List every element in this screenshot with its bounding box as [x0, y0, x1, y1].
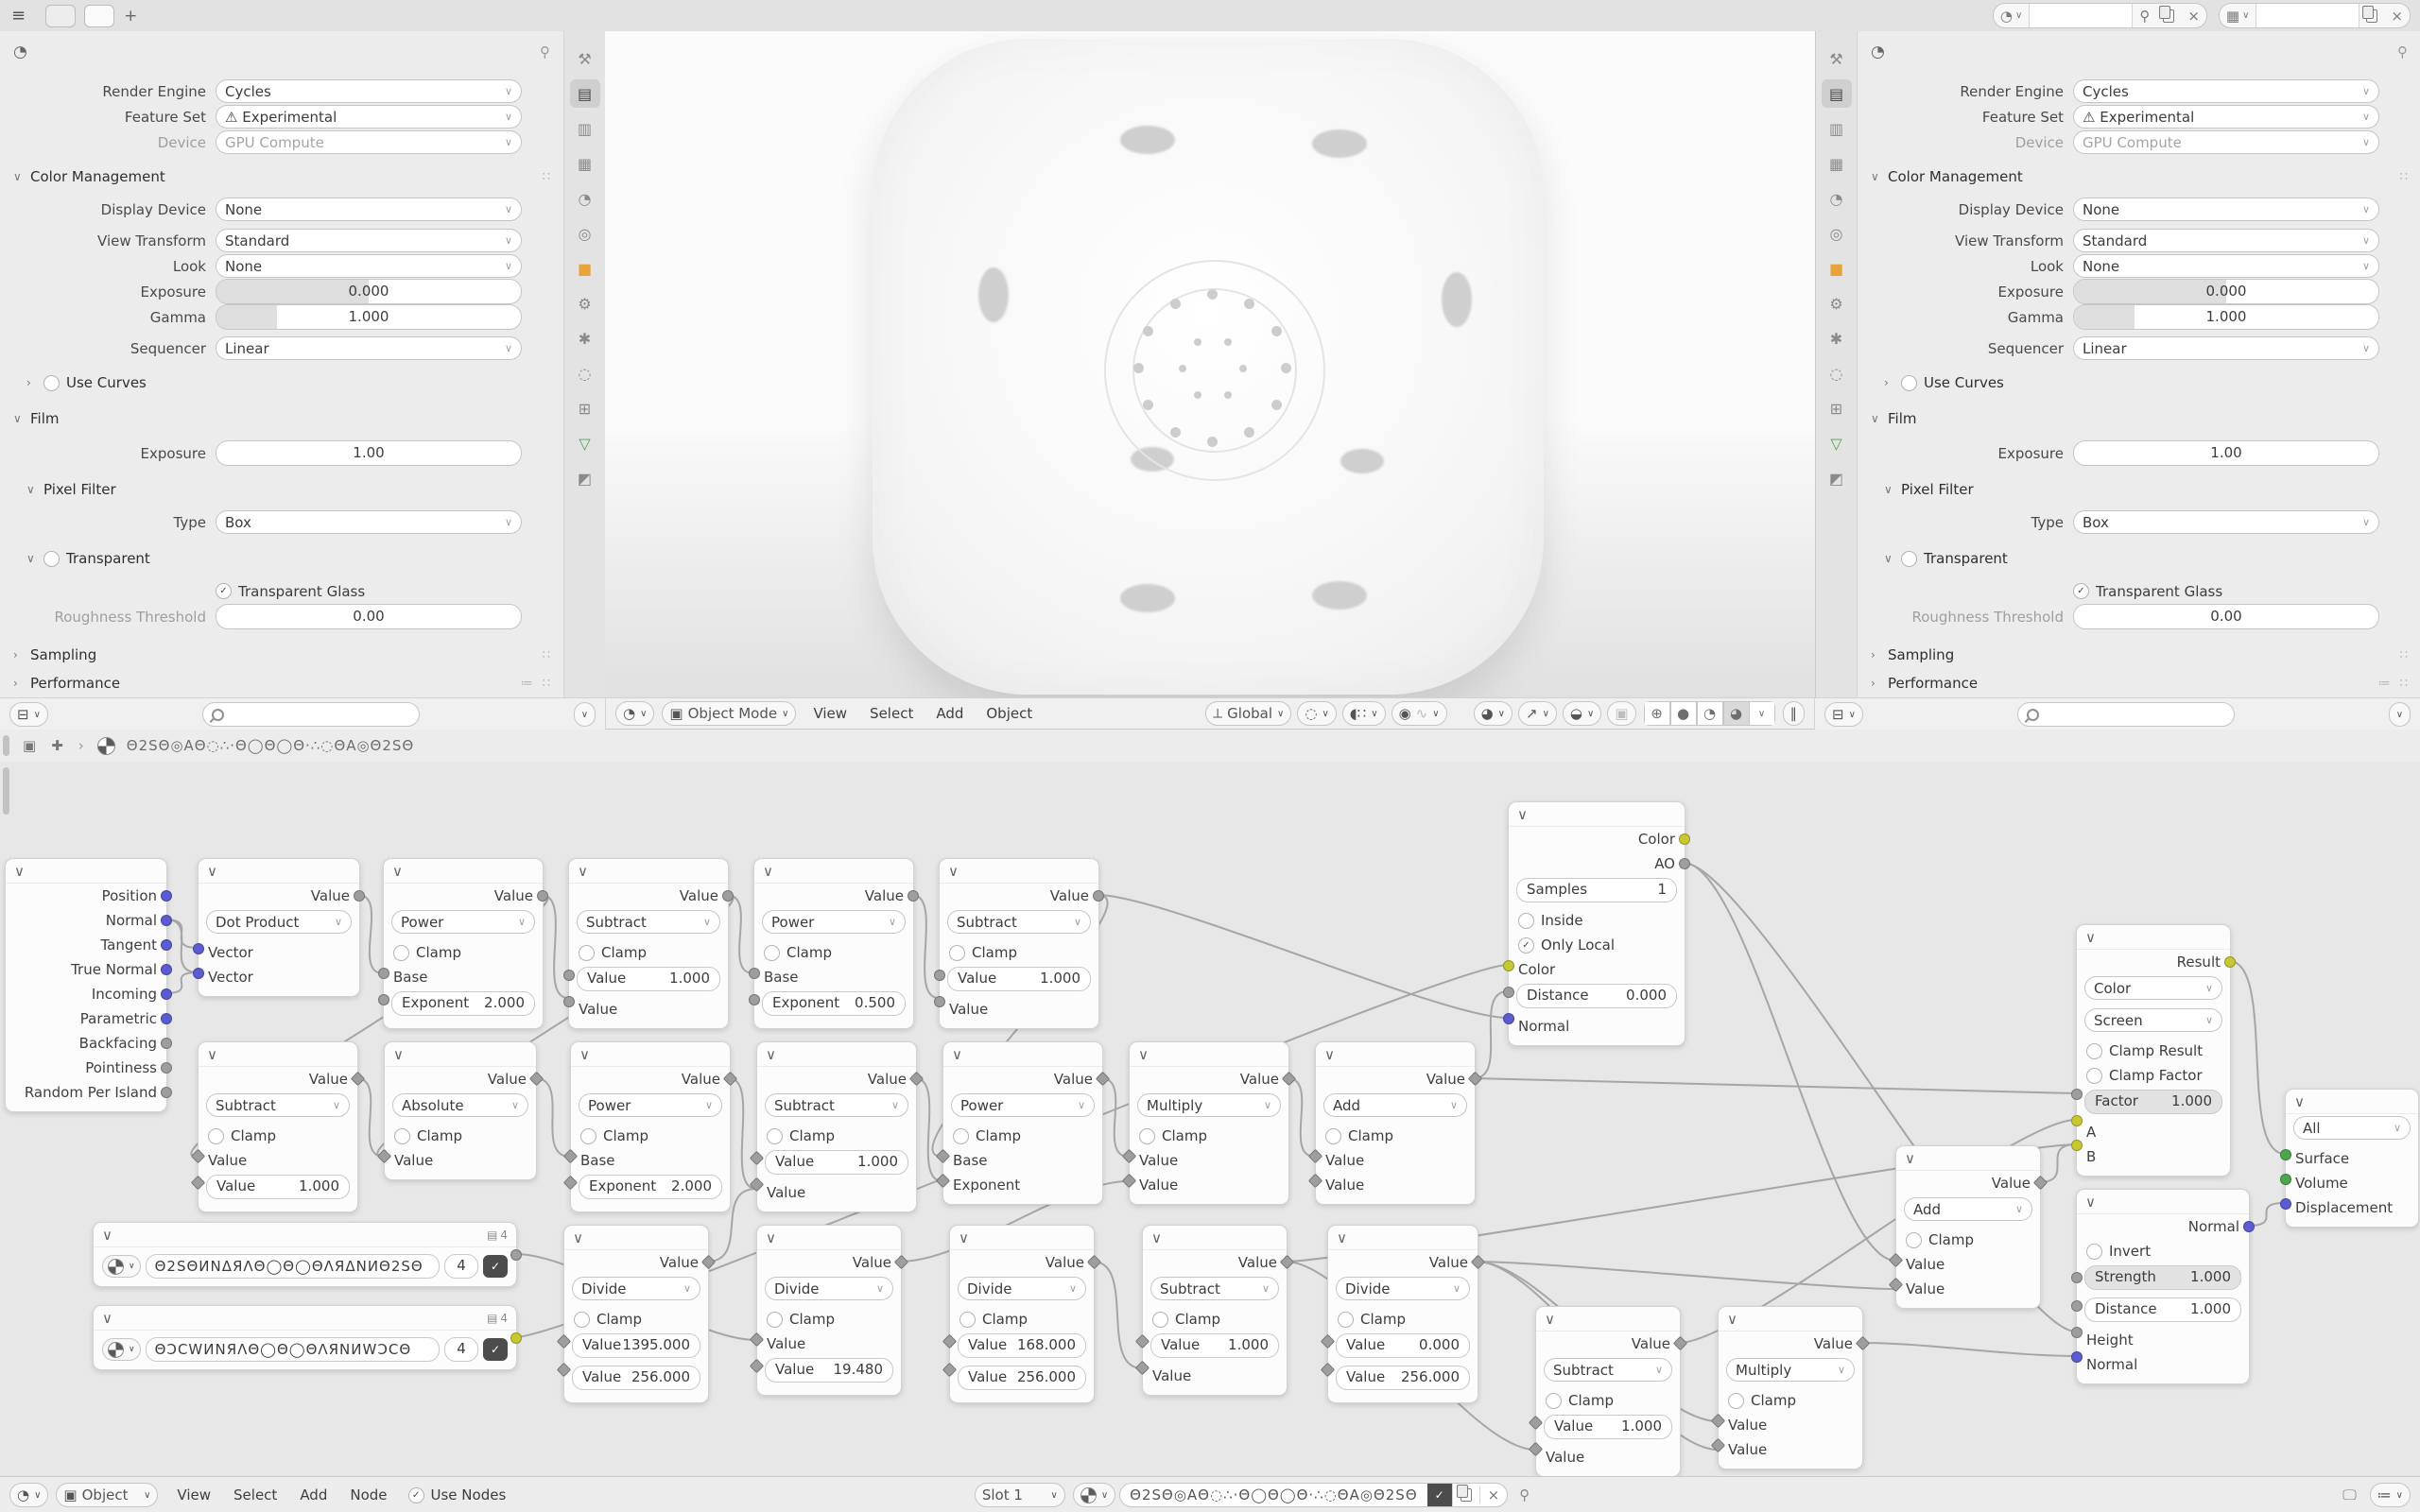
fake-user-toggle[interactable]: ✓ — [1427, 1484, 1452, 1506]
value-field[interactable]: Value1.000 — [1544, 1415, 1672, 1439]
node-socket[interactable] — [537, 890, 548, 902]
node-socket[interactable] — [1503, 987, 1514, 998]
prop-dropdown[interactable]: None∨ — [2073, 198, 2379, 221]
node-socket[interactable] — [1679, 833, 1690, 845]
properties-tab-icon[interactable]: ▦ — [570, 149, 600, 178]
math-node[interactable]: ∨ValueSubtract∨ClampValueValue1.000 — [198, 1041, 358, 1212]
properties-tab-icon[interactable]: ⚙ — [570, 289, 600, 318]
value-field[interactable]: Value1.000 — [577, 967, 720, 991]
operation-dropdown[interactable]: Subtract∨ — [765, 1093, 908, 1117]
operation-dropdown[interactable]: Power∨ — [391, 910, 535, 934]
image-browse-dropdown[interactable]: ∨ — [102, 1255, 141, 1278]
scene-selector[interactable]: ◔∨ ⚲ × — [1993, 3, 2207, 28]
checkbox[interactable] — [1906, 1232, 1922, 1248]
math-node[interactable]: ∨ValueMultiply∨ClampValueValue — [1718, 1306, 1863, 1469]
node-socket[interactable] — [193, 943, 204, 954]
transparent-glass-checkbox[interactable]: ✓ — [216, 583, 232, 599]
properties-tab-icon[interactable]: ◎ — [570, 219, 600, 248]
input-socket-label: Exponent — [953, 1177, 1020, 1194]
value-field[interactable]: Value256.000 — [572, 1366, 700, 1390]
math-node[interactable]: ∨ValuePower∨ClampBaseExponent2.000 — [383, 858, 544, 1029]
pixel-filter-subsection[interactable]: ∨Pixel Filter — [0, 475, 563, 504]
math-node[interactable]: ∨ValueAdd∨ClampValueValue — [1315, 1041, 1476, 1205]
pin-icon[interactable]: ⚲ — [540, 43, 550, 60]
node-socket[interactable] — [563, 996, 575, 1007]
math-node[interactable]: ∨ValuePower∨ClampBaseExponent2.000 — [570, 1041, 731, 1212]
prop-dropdown[interactable]: GPU Compute∨ — [216, 130, 522, 154]
slot-dropdown[interactable]: Slot 1∨ — [975, 1483, 1065, 1507]
input-socket-label: Value — [1139, 1152, 1178, 1169]
value-field[interactable]: Value256.000 — [958, 1366, 1086, 1390]
3d-viewport[interactable] — [605, 31, 1815, 697]
bump-node[interactable]: ∨NormalInvertStrength1.000Distance1.000H… — [2076, 1189, 2250, 1384]
math-node[interactable]: ∨ValueAdd∨ClampValueValue — [1895, 1145, 2041, 1309]
input-socket-label: Value — [1728, 1441, 1767, 1458]
prop-dropdown[interactable]: None∨ — [216, 198, 522, 221]
workspace-tab-active[interactable] — [84, 5, 114, 27]
scene-name-field[interactable] — [2029, 4, 2133, 27]
node-socket[interactable] — [2071, 1115, 2083, 1126]
value-field[interactable]: Strength1.000 — [2084, 1265, 2241, 1290]
properties-tab-icon[interactable]: ■ — [570, 254, 600, 283]
node-socket[interactable] — [934, 970, 945, 981]
node-socket[interactable] — [2071, 1351, 2083, 1363]
section-header[interactable]: ∨Color Management∷ — [1858, 163, 2420, 191]
shading-solid-icon[interactable]: ● — [1670, 701, 1697, 726]
value-field[interactable]: Exponent2.000 — [391, 991, 535, 1016]
node-socket[interactable] — [2071, 1140, 2083, 1151]
math-node[interactable]: ∨ValueSubtract∨ClampValue1.000Value — [568, 858, 729, 1029]
properties-tab-icon[interactable]: ▽ — [1822, 429, 1852, 457]
operation-dropdown[interactable]: Subtract∨ — [206, 1093, 350, 1117]
prop-dropdown[interactable]: Linear∨ — [2073, 336, 2379, 360]
prop-slider[interactable]: 0.000 — [2073, 279, 2379, 304]
math-node[interactable]: ∨ValuePower∨ClampBaseExponent0.500 — [753, 858, 914, 1029]
search-input[interactable] — [202, 702, 420, 727]
node-socket[interactable] — [1093, 890, 1104, 902]
prop-number-field[interactable]: 1.00 — [216, 440, 522, 466]
checkbox[interactable] — [1546, 1393, 1562, 1409]
prop-dropdown[interactable]: Standard∨ — [216, 229, 522, 252]
properties-tab-icon[interactable]: ⚙ — [1822, 289, 1852, 318]
filter-toggle-button[interactable]: ⊟∨ — [1824, 702, 1863, 727]
node-socket[interactable] — [193, 968, 204, 979]
options-dropdown[interactable]: ∨ — [2389, 702, 2411, 727]
math-node[interactable]: ∨ValueDivide∨ClampValueValue19.480 — [756, 1225, 902, 1396]
properties-tab-icon[interactable]: ◩ — [570, 464, 600, 492]
fake-user-toggle[interactable]: ✓ — [483, 1255, 508, 1278]
editor-type-button[interactable]: ◔∨ — [9, 1483, 48, 1507]
math-node[interactable]: ∨ValueSubtract∨ClampValue1.000Value — [1535, 1306, 1681, 1476]
checkbox[interactable] — [949, 945, 965, 961]
value-field[interactable]: Value1.000 — [206, 1175, 350, 1199]
pause-render-button[interactable]: ∥ — [1783, 701, 1806, 726]
xray-toggle[interactable]: ▣ — [1607, 701, 1635, 726]
node-socket[interactable] — [1503, 1013, 1514, 1024]
shading-material-icon[interactable]: ◔ — [1697, 701, 1723, 726]
node-socket[interactable] — [161, 890, 172, 902]
checkbox[interactable]: ✓ — [1518, 937, 1534, 954]
checkbox[interactable] — [394, 1128, 410, 1144]
node-socket[interactable] — [161, 1038, 172, 1049]
math-node[interactable]: ∨ValueSubtract∨ClampValue1.000Value — [756, 1041, 917, 1212]
use-curves-toggle[interactable]: ›Use Curves — [1858, 369, 2420, 397]
checkbox-label: Clamp — [596, 1311, 642, 1328]
node-socket[interactable] — [161, 915, 172, 926]
operation-dropdown[interactable]: Add∨ — [1323, 1093, 1467, 1117]
value-field[interactable]: Value19.480 — [765, 1358, 893, 1383]
value-field[interactable]: Distance1.000 — [2084, 1297, 2241, 1322]
user-count-field[interactable]: 4 — [444, 1337, 478, 1362]
node-socket[interactable] — [749, 994, 760, 1005]
value-field[interactable]: Value1395.000 — [572, 1333, 700, 1358]
node-socket[interactable] — [2243, 1221, 2255, 1232]
visibility-dropdown[interactable]: ◕∨ — [1474, 701, 1512, 726]
pin-icon[interactable]: ⚲ — [2397, 43, 2408, 60]
prop-dropdown[interactable]: ⚠ Experimental∨ — [2073, 105, 2379, 129]
operation-dropdown[interactable]: Dot Product∨ — [206, 910, 352, 934]
properties-tab-icon[interactable]: ▥ — [1822, 114, 1852, 143]
display-icon[interactable]: 🖵 — [2342, 1486, 2356, 1503]
prop-dropdown[interactable]: ⚠ Experimental∨ — [216, 105, 522, 129]
editor-type-button[interactable]: ◔∨ — [615, 701, 654, 726]
image-texture-node[interactable]: ∨▤4∨ΘƆCWИΝЯΛΘ◯Θ◯ΘΛЯΝИWƆCΘ4✓ — [93, 1305, 517, 1370]
operation-dropdown[interactable]: Add∨ — [1904, 1197, 2032, 1221]
material-output-node[interactable]: ∨All∨SurfaceVolumeDisplacement — [2285, 1089, 2419, 1228]
properties-tab-icon[interactable]: ◔ — [1822, 184, 1852, 213]
prop-label: Gamma — [1858, 309, 2073, 326]
node-socket[interactable] — [161, 939, 172, 951]
node-socket[interactable] — [2071, 1272, 2083, 1283]
transparent-subsection[interactable]: ∨Transparent — [0, 544, 563, 573]
snap-dropdown[interactable]: ◌∨ — [1297, 701, 1336, 726]
value-field[interactable]: Value1.000 — [765, 1150, 908, 1175]
value-field[interactable]: Samples1 — [1516, 878, 1677, 902]
node-socket[interactable] — [354, 890, 365, 902]
checkbox[interactable] — [580, 1128, 596, 1144]
node-socket[interactable] — [161, 1062, 172, 1074]
shading-wireframe-icon[interactable]: ⊕ — [1644, 701, 1670, 726]
operation-dropdown[interactable]: Subtract∨ — [1150, 1277, 1279, 1300]
properties-tab-icon[interactable]: ◎ — [1822, 219, 1852, 248]
value-field[interactable]: Exponent0.500 — [762, 991, 906, 1016]
prop-dropdown[interactable]: GPU Compute∨ — [2073, 130, 2379, 154]
prop-dropdown[interactable]: Cycles∨ — [216, 79, 522, 103]
section-header[interactable]: ›Sampling∷ — [1858, 641, 2420, 669]
section-header[interactable]: ∨Color Management∷ — [0, 163, 563, 191]
node-socket[interactable] — [1679, 858, 1690, 869]
prop-slider[interactable]: 0.000 — [216, 279, 522, 304]
math-node[interactable]: ∨ValueSubtract∨ClampValue1.000Value — [939, 858, 1099, 1029]
checkbox[interactable] — [953, 1128, 969, 1144]
properties-tab-icon[interactable]: ▽ — [570, 429, 600, 457]
output-socket-label: Value — [488, 1071, 527, 1088]
value-field[interactable]: Value1.000 — [1150, 1333, 1279, 1358]
checkbox[interactable] — [579, 945, 595, 961]
viewlayer-selector[interactable]: ▦∨ × — [2219, 3, 2411, 28]
properties-tab-icon[interactable]: ✱ — [1822, 324, 1852, 352]
search-input[interactable] — [2017, 702, 2235, 727]
value-field[interactable]: Distance0.000 — [1516, 984, 1677, 1008]
shading-dropdown[interactable]: ∨ — [1750, 701, 1775, 726]
shader-node-canvas[interactable]: ∨PositionNormalTangentTrue NormalIncomin… — [0, 762, 2420, 1476]
status-dropdown[interactable]: ≔∨ — [2370, 1483, 2411, 1507]
options-dropdown[interactable]: ∨ — [574, 702, 596, 727]
magnet-toggle[interactable]: ◖∷∨ — [1342, 701, 1386, 726]
output-socket-label: True Normal — [71, 961, 157, 978]
section-header[interactable]: ∨Film — [0, 404, 563, 433]
checkbox[interactable] — [208, 1128, 224, 1144]
math-node[interactable]: ∨ValueDivide∨ClampValue0.000Value256.000 — [1327, 1225, 1478, 1403]
input-socket-label: Value — [767, 1184, 805, 1201]
node-socket[interactable] — [161, 988, 172, 1000]
checkbox[interactable] — [2086, 1068, 2102, 1084]
value-field[interactable]: Exponent2.000 — [579, 1175, 722, 1199]
operation-dropdown[interactable]: Power∨ — [762, 910, 906, 934]
checkbox[interactable] — [1152, 1312, 1168, 1328]
node-socket[interactable] — [2224, 956, 2236, 968]
menu-add[interactable]: Add — [925, 705, 975, 722]
section-header[interactable]: ›Performance≔∷ — [1858, 669, 2420, 697]
checkbox[interactable] — [959, 1312, 976, 1328]
menu-node[interactable]: Node — [338, 1486, 398, 1503]
node-socket[interactable] — [378, 994, 389, 1005]
workspace-tab[interactable] — [45, 5, 76, 27]
menu-select[interactable]: Select — [858, 705, 925, 722]
unlink-material-button[interactable]: × — [1479, 1486, 1508, 1503]
operation-dropdown[interactable]: Power∨ — [951, 1093, 1095, 1117]
vector-math-node[interactable]: ∨ValueDot Product∨VectorVector — [198, 858, 360, 997]
add-workspace-button[interactable]: + — [124, 7, 137, 26]
proportional-edit-toggle[interactable]: ◉∿∨ — [1391, 701, 1447, 726]
node-socket[interactable] — [510, 1249, 522, 1261]
checkbox[interactable] — [1139, 1128, 1155, 1144]
checkbox[interactable] — [1338, 1312, 1354, 1328]
properties-content: ◔⚲Render EngineCycles∨Feature Set⚠ Exper… — [0, 31, 563, 697]
prop-label: Feature Set — [0, 109, 216, 126]
copy-icon[interactable] — [2359, 4, 2384, 27]
output-socket-label: Value — [853, 1254, 891, 1271]
checkbox[interactable] — [1518, 913, 1534, 929]
checkbox[interactable] — [2086, 1244, 2102, 1260]
checkbox-label: Clamp — [789, 1127, 835, 1144]
menu-add[interactable]: Add — [288, 1486, 338, 1503]
properties-tab-icon[interactable]: ⊞ — [570, 394, 600, 422]
operation-dropdown[interactable]: Absolute∨ — [392, 1093, 528, 1117]
operation-dropdown[interactable]: Subtract∨ — [1544, 1358, 1672, 1382]
menu-view[interactable]: View — [802, 705, 858, 722]
shading-rendered-icon[interactable]: ◕ — [1723, 701, 1750, 726]
math-node[interactable]: ∨ValueAbsolute∨ClampValue — [384, 1041, 537, 1180]
math-node[interactable]: ∨ValuePower∨ClampBaseExponent — [942, 1041, 1103, 1205]
node-socket[interactable] — [749, 968, 760, 979]
checkbox[interactable] — [393, 945, 409, 961]
node-socket[interactable] — [722, 890, 734, 902]
properties-tab-icon[interactable]: ◌ — [570, 359, 600, 387]
input-socket-label: Value — [579, 1001, 617, 1018]
properties-tab-icon[interactable]: ◔ — [570, 184, 600, 213]
properties-tab-icon[interactable]: ◌ — [1822, 359, 1852, 387]
operation-dropdown[interactable]: All∨ — [2293, 1116, 2411, 1140]
node-socket[interactable] — [2071, 1089, 2083, 1100]
operation-dropdown[interactable]: Power∨ — [579, 1093, 722, 1117]
properties-tab-icon[interactable]: ■ — [1822, 254, 1852, 283]
output-socket-label: Normal — [106, 912, 157, 929]
prop-dropdown[interactable]: Box∨ — [216, 510, 522, 534]
copy-icon[interactable] — [2156, 4, 2181, 27]
menu-view[interactable]: View — [165, 1486, 222, 1503]
material-name-field[interactable]: Θ2SΘ◎AΘ◌∴·Θ◯Θ◯Θ·∴◌ΘA◎Θ2SΘ — [1120, 1486, 1426, 1503]
prop-dropdown[interactable]: Standard∨ — [2073, 229, 2379, 252]
pixel-filter-subsection[interactable]: ∨Pixel Filter — [1858, 475, 2420, 504]
prop-number-field[interactable]: 1.00 — [2073, 440, 2379, 466]
pin-icon[interactable]: ⚲ — [1519, 1486, 1530, 1503]
checkbox[interactable] — [767, 1312, 783, 1328]
section-header[interactable]: ∨Film — [1858, 404, 2420, 433]
input-socket-label: Volume — [2295, 1175, 2348, 1192]
node-socket[interactable] — [2071, 1327, 2083, 1338]
viewport-header: ◔∨ ▣ Object Mode∨ View Select Add Object… — [605, 697, 1815, 730]
operation-dropdown[interactable]: Color∨ — [2084, 976, 2222, 1000]
node-socket[interactable] — [2280, 1198, 2291, 1210]
properties-tab-icon[interactable]: ▤ — [570, 79, 600, 108]
copy-material-button[interactable] — [1452, 1484, 1479, 1506]
input-socket-label: Vector — [208, 944, 253, 961]
properties-tab-icon[interactable]: ◩ — [1822, 464, 1852, 492]
node-socket[interactable] — [161, 1087, 172, 1098]
prop-dropdown[interactable]: Box∨ — [2073, 510, 2379, 534]
properties-tab-icon[interactable]: ▤ — [1822, 79, 1852, 108]
prop-dropdown[interactable]: Linear∨ — [216, 336, 522, 360]
properties-tab-icon[interactable]: ✱ — [570, 324, 600, 352]
node-socket[interactable] — [161, 1013, 172, 1024]
image-name-field[interactable]: ΘƆCWИΝЯΛΘ◯Θ◯ΘΛЯΝИWƆCΘ — [146, 1337, 440, 1362]
use-nodes-checkbox[interactable]: ✓ — [408, 1487, 424, 1503]
input-socket-label: Value — [1152, 1367, 1191, 1384]
viewlayer-icon: ▦∨ — [2220, 4, 2256, 27]
user-count-field[interactable]: 4 — [444, 1254, 478, 1279]
node-socket[interactable] — [934, 996, 945, 1007]
properties-tab-icon[interactable]: ⚒ — [570, 44, 600, 73]
image-name-field[interactable]: Θ2SΘИΝΔЯΛΘ◯Θ◯ΘΛЯΔΝИΘ2SΘ — [146, 1254, 440, 1279]
operation-dropdown[interactable]: Subtract∨ — [577, 910, 720, 934]
node-socket[interactable] — [161, 964, 172, 975]
menu-object[interactable]: Object — [975, 705, 1044, 722]
properties-tab-icon[interactable]: ⊞ — [1822, 394, 1852, 422]
menu-select[interactable]: Select — [222, 1486, 288, 1503]
scrollbar[interactable] — [3, 767, 9, 815]
prop-dropdown[interactable]: None∨ — [216, 254, 522, 278]
prop-label: Gamma — [0, 309, 216, 326]
operation-dropdown[interactable]: Divide∨ — [1336, 1277, 1470, 1300]
value-field[interactable]: Value1.000 — [947, 967, 1091, 991]
overlays-dropdown[interactable]: ◒∨ — [1563, 701, 1601, 726]
value-field[interactable]: Value168.000 — [958, 1333, 1086, 1358]
pin-icon[interactable]: ⚲ — [2133, 4, 2156, 27]
checkbox[interactable] — [1325, 1128, 1341, 1144]
properties-tab-strip[interactable]: ⚒▤▥▦◔◎■⚙✱◌⊞▽◩ — [1816, 31, 1858, 697]
node-socket[interactable] — [1503, 960, 1514, 971]
prop-number-field[interactable]: 0.00 — [216, 604, 522, 629]
transparent-subsection[interactable]: ∨Transparent — [1858, 544, 2420, 573]
prop-dropdown[interactable]: Cycles∨ — [2073, 79, 2379, 103]
remove-icon: × — [2384, 4, 2410, 27]
operation-dropdown[interactable]: Multiply∨ — [1137, 1093, 1281, 1117]
checkbox[interactable] — [764, 945, 780, 961]
value-field[interactable]: Value0.000 — [1336, 1333, 1470, 1358]
material-browse-dropdown[interactable]: ∨ — [1073, 1483, 1115, 1507]
mode-dropdown[interactable]: ▣ Object Mode∨ — [662, 701, 796, 726]
prop-slider[interactable]: 1.000 — [216, 304, 522, 330]
prop-slider[interactable]: 1.000 — [2073, 304, 2379, 330]
fake-user-toggle[interactable]: ✓ — [483, 1338, 508, 1361]
math-node[interactable]: ∨ValueSubtract∨ClampValue1.000Value — [1142, 1225, 1288, 1396]
node-socket[interactable] — [2280, 1174, 2291, 1185]
shader-type-dropdown[interactable]: ▣ Object∨ — [56, 1483, 158, 1507]
prop-dropdown[interactable]: None∨ — [2073, 254, 2379, 278]
node-socket[interactable] — [378, 968, 389, 979]
properties-tab-icon[interactable]: ▥ — [570, 114, 600, 143]
operation-dropdown[interactable]: Multiply∨ — [1726, 1358, 1855, 1382]
math-node[interactable]: ∨ValueMultiply∨ClampValueValue — [1129, 1041, 1289, 1205]
properties-tab-strip[interactable]: ⚒▤▥▦◔◎■⚙✱◌⊞▽◩ — [563, 31, 605, 697]
node-socket[interactable] — [2280, 1149, 2291, 1160]
operation-dropdown[interactable]: Subtract∨ — [947, 910, 1091, 934]
image-texture-node[interactable]: ∨▤4∨Θ2SΘИΝΔЯΛΘ◯Θ◯ΘΛЯΔΝИΘ2SΘ4✓ — [93, 1222, 517, 1287]
filter-toggle-button[interactable]: ⊟∨ — [9, 702, 48, 727]
node-socket[interactable] — [907, 890, 919, 902]
prop-label: Device — [0, 134, 216, 151]
section-header[interactable]: ›Performance≔∷ — [0, 669, 563, 697]
properties-tab-icon[interactable]: ⚒ — [1822, 44, 1852, 73]
operation-dropdown[interactable]: Divide∨ — [765, 1277, 893, 1300]
checkbox[interactable] — [1728, 1393, 1744, 1409]
hamburger-menu-icon[interactable]: ≡ — [0, 6, 37, 26]
gizmos-dropdown[interactable]: ↗∨ — [1518, 701, 1557, 726]
ambient-occlusion-node[interactable]: ∨ColorAOSamples1Inside✓Only LocalColorDi… — [1508, 801, 1685, 1046]
geometry-node[interactable]: ∨PositionNormalTangentTrue NormalIncomin… — [5, 858, 167, 1112]
value-field[interactable]: Factor1.000 — [2084, 1090, 2222, 1114]
transparent-glass-checkbox[interactable]: ✓ — [2073, 583, 2089, 599]
properties-header-right: ⊟∨∨ — [1815, 697, 2420, 731]
use-curves-toggle[interactable]: ›Use Curves — [0, 369, 563, 397]
prop-number-field[interactable]: 0.00 — [2073, 604, 2379, 629]
checkbox[interactable] — [2086, 1043, 2102, 1059]
value-field[interactable]: Value256.000 — [1336, 1366, 1470, 1390]
scrollbar[interactable] — [3, 735, 9, 756]
operation-dropdown[interactable]: Divide∨ — [958, 1277, 1086, 1300]
operation-dropdown[interactable]: Screen∨ — [2084, 1008, 2222, 1032]
checkbox[interactable] — [574, 1312, 590, 1328]
mix-color-node[interactable]: ∨ResultColor∨Screen∨Clamp ResultClamp Fa… — [2076, 924, 2231, 1177]
node-socket[interactable] — [563, 970, 575, 981]
input-socket-label: Height — [2086, 1332, 2134, 1349]
math-node[interactable]: ∨ValueDivide∨ClampValue168.000Value256.0… — [949, 1225, 1095, 1403]
image-browse-dropdown[interactable]: ∨ — [102, 1338, 141, 1361]
operation-dropdown[interactable]: Divide∨ — [572, 1277, 700, 1300]
section-header[interactable]: ›Sampling∷ — [0, 641, 563, 669]
transform-orientation-dropdown[interactable]: ⟂ Global∨ — [1205, 701, 1291, 726]
input-socket-label: Base — [580, 1152, 615, 1169]
output-socket-label: Normal — [2188, 1218, 2239, 1235]
checkbox-label: Clamp — [417, 1127, 462, 1144]
node-socket[interactable] — [2071, 1300, 2083, 1312]
checkbox[interactable] — [767, 1128, 783, 1144]
properties-tab-icon[interactable]: ▦ — [1822, 149, 1852, 178]
math-node[interactable]: ∨ValueDivide∨ClampValue1395.000Value256.… — [563, 1225, 709, 1403]
viewlayer-name-field[interactable] — [2256, 4, 2359, 27]
node-socket[interactable] — [510, 1332, 522, 1344]
